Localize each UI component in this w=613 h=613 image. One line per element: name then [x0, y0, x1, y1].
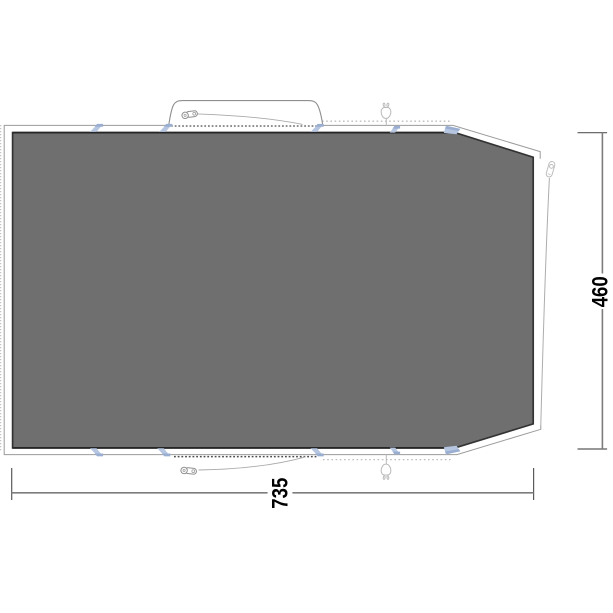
svg-text:460: 460 [588, 276, 613, 307]
svg-text:735: 735 [268, 478, 293, 509]
